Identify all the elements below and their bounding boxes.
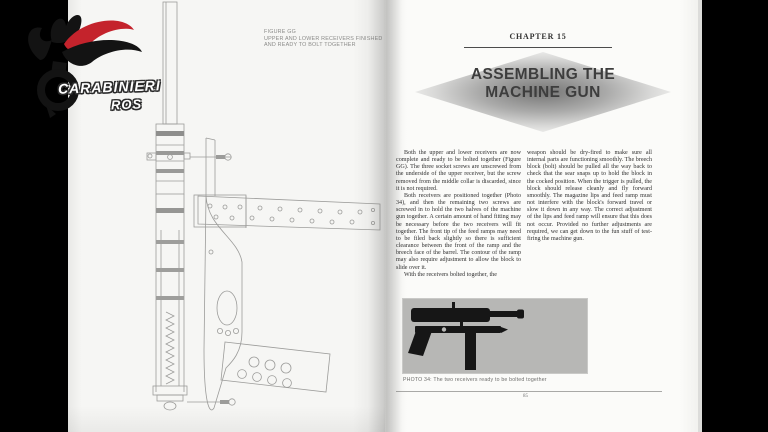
chapter-heading: CHAPTER 15 bbox=[408, 32, 668, 41]
carabinieri-ros-watermark: CARABINIERI ROS bbox=[6, 2, 176, 132]
photo-caption: PHOTO 34: The two receivers ready to be … bbox=[403, 377, 653, 383]
ros-label: ROS bbox=[111, 96, 143, 112]
chapter-rule bbox=[464, 47, 612, 48]
paragraph: Both the upper and lower receivers are n… bbox=[396, 150, 521, 193]
book-gutter bbox=[368, 0, 402, 432]
page-edge bbox=[698, 0, 702, 432]
footer-rule bbox=[396, 391, 662, 392]
video-frame: FIGURE GG UPPER AND LOWER RECEIVERS FINI… bbox=[0, 0, 768, 432]
photo-34 bbox=[403, 299, 587, 373]
chapter-title-line: ASSEMBLING THE bbox=[415, 66, 671, 84]
body-column-left: Both the upper and lower receivers are n… bbox=[396, 150, 521, 279]
page-number: 85 bbox=[523, 394, 528, 399]
paragraph: With the receivers bolted together, the bbox=[396, 272, 521, 279]
body-column-right: weapon should be dry-fired to make sure … bbox=[527, 150, 652, 243]
carabinieri-flame-icon bbox=[6, 2, 176, 132]
paragraph: Both receivers are positioned together (… bbox=[396, 193, 521, 272]
chapter-title-line: MACHINE GUN bbox=[415, 84, 671, 102]
chapter-title: ASSEMBLING THE MACHINE GUN bbox=[415, 66, 671, 102]
paragraph: weapon should be dry-fired to make sure … bbox=[527, 150, 652, 243]
receivers-photo-silhouette bbox=[403, 299, 587, 373]
